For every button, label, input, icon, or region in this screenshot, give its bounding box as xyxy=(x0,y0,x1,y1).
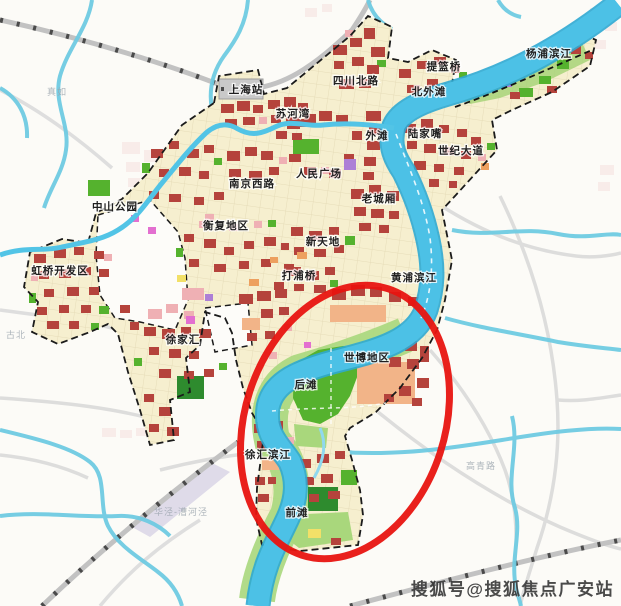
map-label: 徐汇滨江 xyxy=(244,448,291,461)
zhongshan-park xyxy=(88,180,110,196)
map-label: 苏河湾 xyxy=(276,107,311,120)
map-label: 世博地区 xyxy=(344,351,390,364)
map-label: 提篮桥 xyxy=(427,60,462,73)
map-label: 黄浦滨江 xyxy=(391,271,437,284)
map-screenshot: 上海站苏河湾四川北路提篮桥北外滩杨浦滨江外滩陆家嘴世纪大道人民广场南京西路老城厢… xyxy=(0,0,621,606)
map-label: 高青路 xyxy=(466,460,496,471)
map-canvas: 上海站苏河湾四川北路提篮桥北外滩杨浦滨江外滩陆家嘴世纪大道人民广场南京西路老城厢… xyxy=(0,0,621,606)
map-label: 古北 xyxy=(6,329,26,340)
map-label: 陆家嘴 xyxy=(408,127,443,140)
map-label: 上海站 xyxy=(229,83,264,96)
map-label: 杨浦滨江 xyxy=(526,47,572,60)
map-label: 外滩 xyxy=(365,129,389,142)
map-label: 南京西路 xyxy=(229,177,275,190)
map-label: 中山公园 xyxy=(92,200,138,213)
map-label: 老城厢 xyxy=(361,192,397,205)
map-label: 真如 xyxy=(47,86,67,97)
map-label: 华泾-漕河泾 xyxy=(154,506,208,517)
map-label: 打浦桥 xyxy=(282,269,317,282)
map-label: 衡复地区 xyxy=(203,219,249,232)
map-label: 虹桥开发区 xyxy=(31,264,89,277)
map-label: 四川北路 xyxy=(333,74,379,87)
map-label: 新天地 xyxy=(306,235,341,248)
map-label: 前滩 xyxy=(286,506,309,519)
map-label: 北外滩 xyxy=(412,85,447,98)
map-label: 徐家汇 xyxy=(165,333,201,346)
watermark: 搜狐号@搜狐焦点广安站 xyxy=(411,579,614,599)
map-label: 世纪大道 xyxy=(438,144,484,157)
peoples-square-park xyxy=(293,139,319,154)
map-label: 后滩 xyxy=(295,378,318,391)
map-label: 人民广场 xyxy=(296,167,342,180)
